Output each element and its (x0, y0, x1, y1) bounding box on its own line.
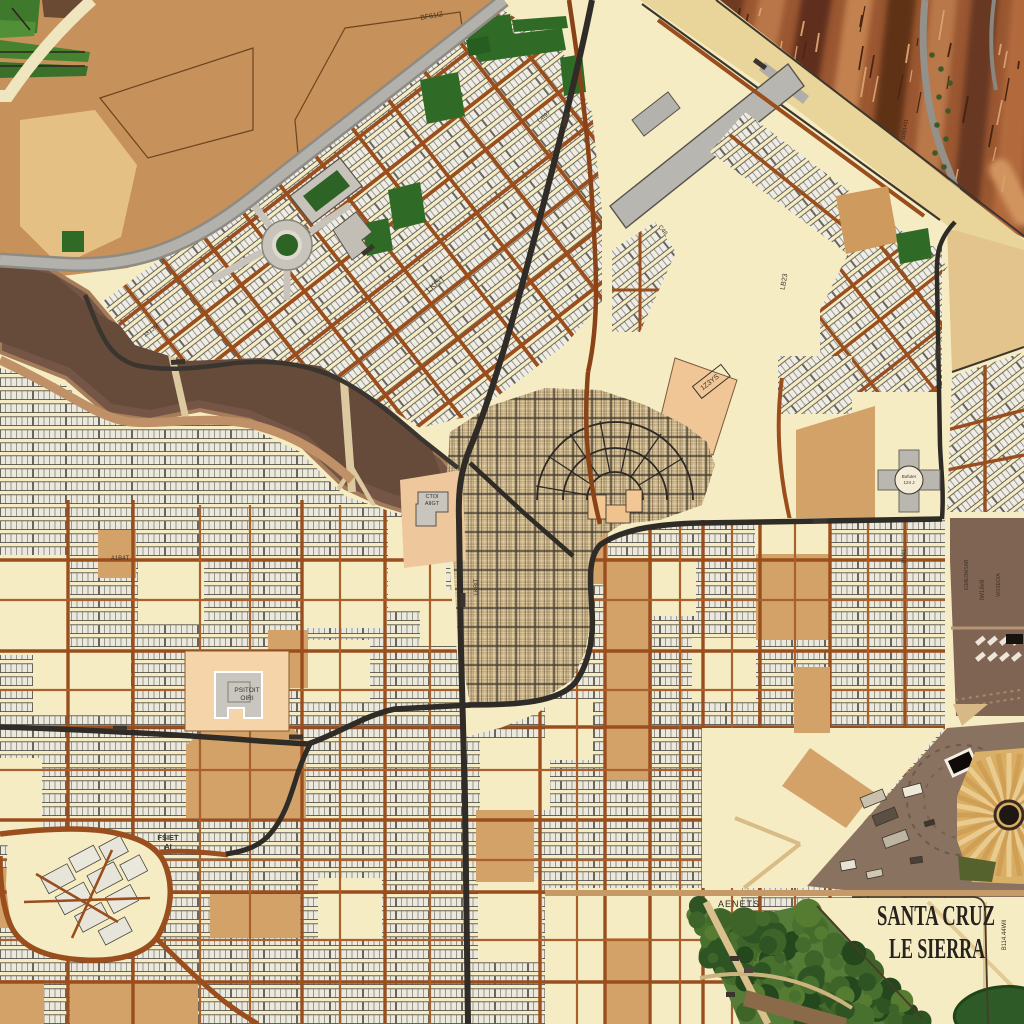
svg-text:Bofuter: Bofuter (902, 474, 917, 479)
svg-text:BK41: BK41 (902, 548, 908, 563)
svg-text:WSSEOIA: WSSEOIA (996, 573, 1002, 597)
svg-text:124 J: 124 J (903, 480, 914, 485)
svg-text:CTOI: CTOI (425, 494, 439, 500)
svg-text:IW18#8: IW18#8 (980, 579, 986, 600)
svg-text:SANTA CRUZ: SANTA CRUZ (877, 900, 995, 932)
svg-text:AENETS: AENETS (718, 899, 760, 909)
svg-text:PSITOIT: PSITOIT (234, 687, 259, 694)
svg-text:AI: AI (164, 842, 172, 851)
svg-text:A1B4T: A1B4T (111, 556, 130, 562)
svg-text:LKBIT: LKBIT (474, 578, 480, 595)
svg-text:FSIET: FSIET (157, 833, 179, 842)
svg-text:B114.44WIl: B114.44WIl (1002, 920, 1008, 951)
svg-text:AIIGT: AIIGT (425, 501, 440, 507)
svg-text:IGMEOMSAB: IGMEOMSAB (964, 559, 970, 591)
svg-text:LE SIERRA: LE SIERRA (889, 933, 985, 965)
svg-text:OIRI: OIRI (240, 695, 254, 702)
